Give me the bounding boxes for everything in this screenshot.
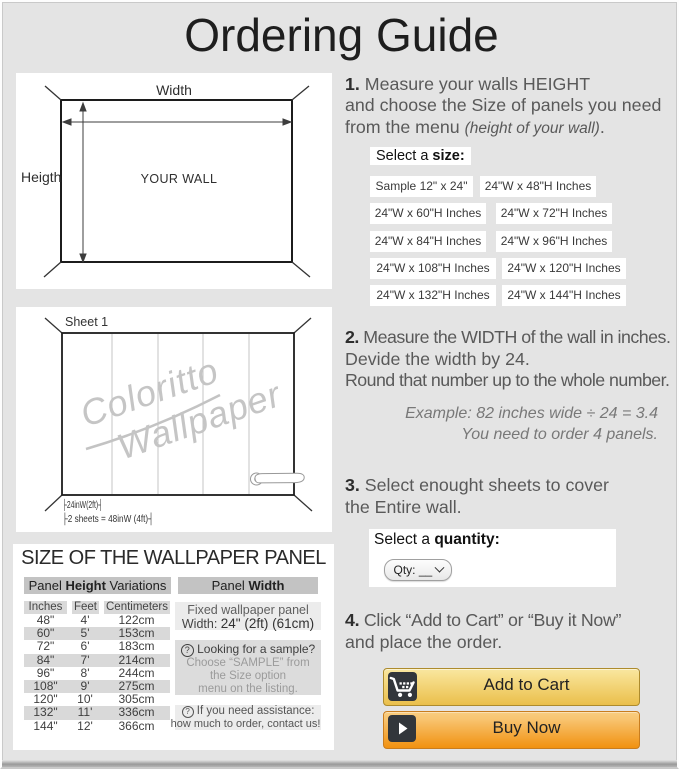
svg-text:Width: Width	[156, 82, 192, 98]
svg-text:Sheet 1: Sheet 1	[65, 315, 108, 329]
svg-text:YOUR WALL: YOUR WALL	[141, 172, 218, 186]
